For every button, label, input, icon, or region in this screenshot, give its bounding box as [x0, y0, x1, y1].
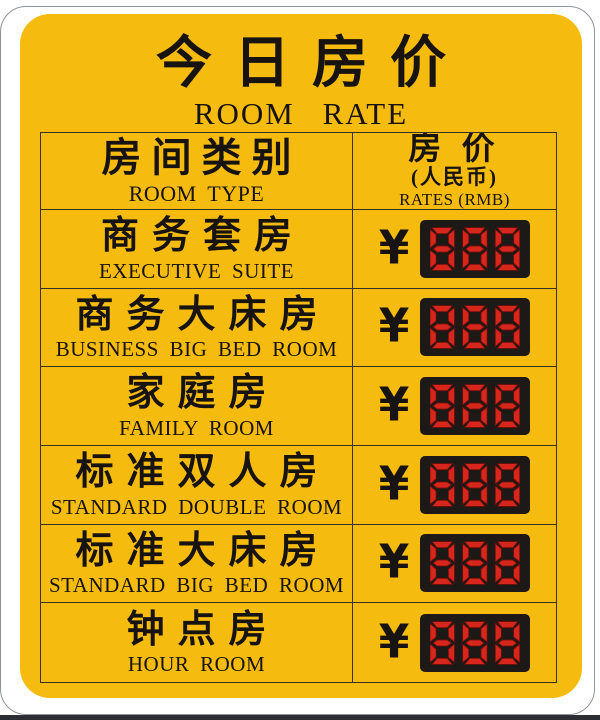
header-room-type: 房间类别 ROOM TYPE: [41, 133, 353, 210]
table-row-hour-room-price: ¥: [353, 603, 556, 682]
room-rate-sign: 今日房价 ROOM RATE 房间类别 ROOM TYPE 房 价 (人民币) …: [20, 14, 582, 698]
table-row-family-room-price: ¥: [353, 367, 556, 446]
room-rate-table: 房间类别 ROOM TYPE 房 价 (人民币) RATES (RMB) 商务套…: [40, 132, 557, 683]
table-row-standard-double-name: 标准双人房 STANDARD DOUBLE ROOM: [41, 446, 353, 525]
header-room-type-en: ROOM TYPE: [129, 182, 265, 206]
room-name-zh: 钟点房: [113, 609, 279, 652]
yen-symbol: ¥: [379, 304, 410, 350]
room-name-en: EXECUTIVE SUITE: [99, 260, 294, 283]
led-price-display: [420, 298, 530, 356]
header-room-type-zh: 房间类别: [92, 136, 302, 181]
table-row-standard-double-price: ¥: [353, 446, 556, 525]
table-row-executive-suite-price: ¥: [353, 210, 556, 289]
header-rates-zh: 房 价: [408, 133, 500, 166]
table-row-family-room-name: 家庭房 FAMILY ROOM: [41, 367, 353, 446]
led-price-display: [420, 377, 530, 435]
yen-symbol: ¥: [379, 540, 410, 586]
table-row-executive-suite-name: 商务套房 EXECUTIVE SUITE: [41, 210, 353, 289]
yen-symbol: ¥: [379, 383, 410, 429]
room-name-zh: 家庭房: [113, 372, 279, 415]
room-name-en: FAMILY ROOM: [119, 417, 274, 440]
table-row-business-big-bed-price: ¥: [353, 289, 556, 368]
header-rates-en: RATES (RMB): [399, 190, 510, 210]
photo-bottom-edge: [0, 715, 600, 720]
header-rates: 房 价 (人民币) RATES (RMB): [353, 133, 556, 210]
table-row-standard-big-bed-name: 标准大床房 STANDARD BIG BED ROOM: [41, 525, 353, 604]
led-price-display: [420, 614, 530, 672]
sign-title-chinese: 今日房价: [20, 34, 582, 96]
room-name-zh: 标准双人房: [62, 451, 330, 494]
led-price-display: [420, 456, 530, 514]
room-name-en: STANDARD BIG BED ROOM: [49, 574, 344, 597]
yen-symbol: ¥: [379, 462, 410, 508]
yen-symbol: ¥: [379, 620, 410, 666]
table-row-standard-big-bed-price: ¥: [353, 525, 556, 604]
sign-title-english: ROOM RATE: [20, 96, 582, 132]
room-name-en: STANDARD DOUBLE ROOM: [51, 496, 342, 519]
table-row-hour-room-name: 钟点房 HOUR ROOM: [41, 603, 353, 682]
room-name-zh: 商务套房: [88, 215, 305, 258]
header-rates-note-zh: (人民币): [411, 166, 498, 189]
room-name-zh: 商务大床房: [62, 294, 330, 337]
room-name-zh: 标准大床房: [62, 530, 330, 573]
room-name-en: BUSINESS BIG BED ROOM: [56, 338, 338, 361]
led-price-display: [420, 534, 530, 592]
table-row-business-big-bed-name: 商务大床房 BUSINESS BIG BED ROOM: [41, 289, 353, 368]
yen-symbol: ¥: [379, 226, 410, 272]
room-name-en: HOUR ROOM: [128, 653, 265, 676]
led-price-display: [420, 220, 530, 278]
